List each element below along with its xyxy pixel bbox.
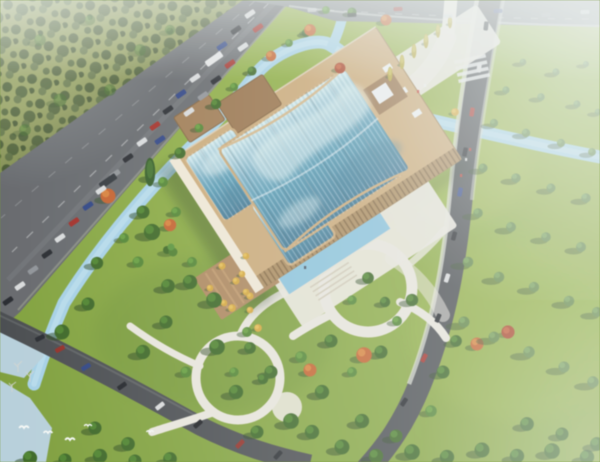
scene-canvas: [0, 0, 600, 462]
haze-overlays: [0, 0, 600, 462]
architectural-rendering: [0, 0, 600, 462]
